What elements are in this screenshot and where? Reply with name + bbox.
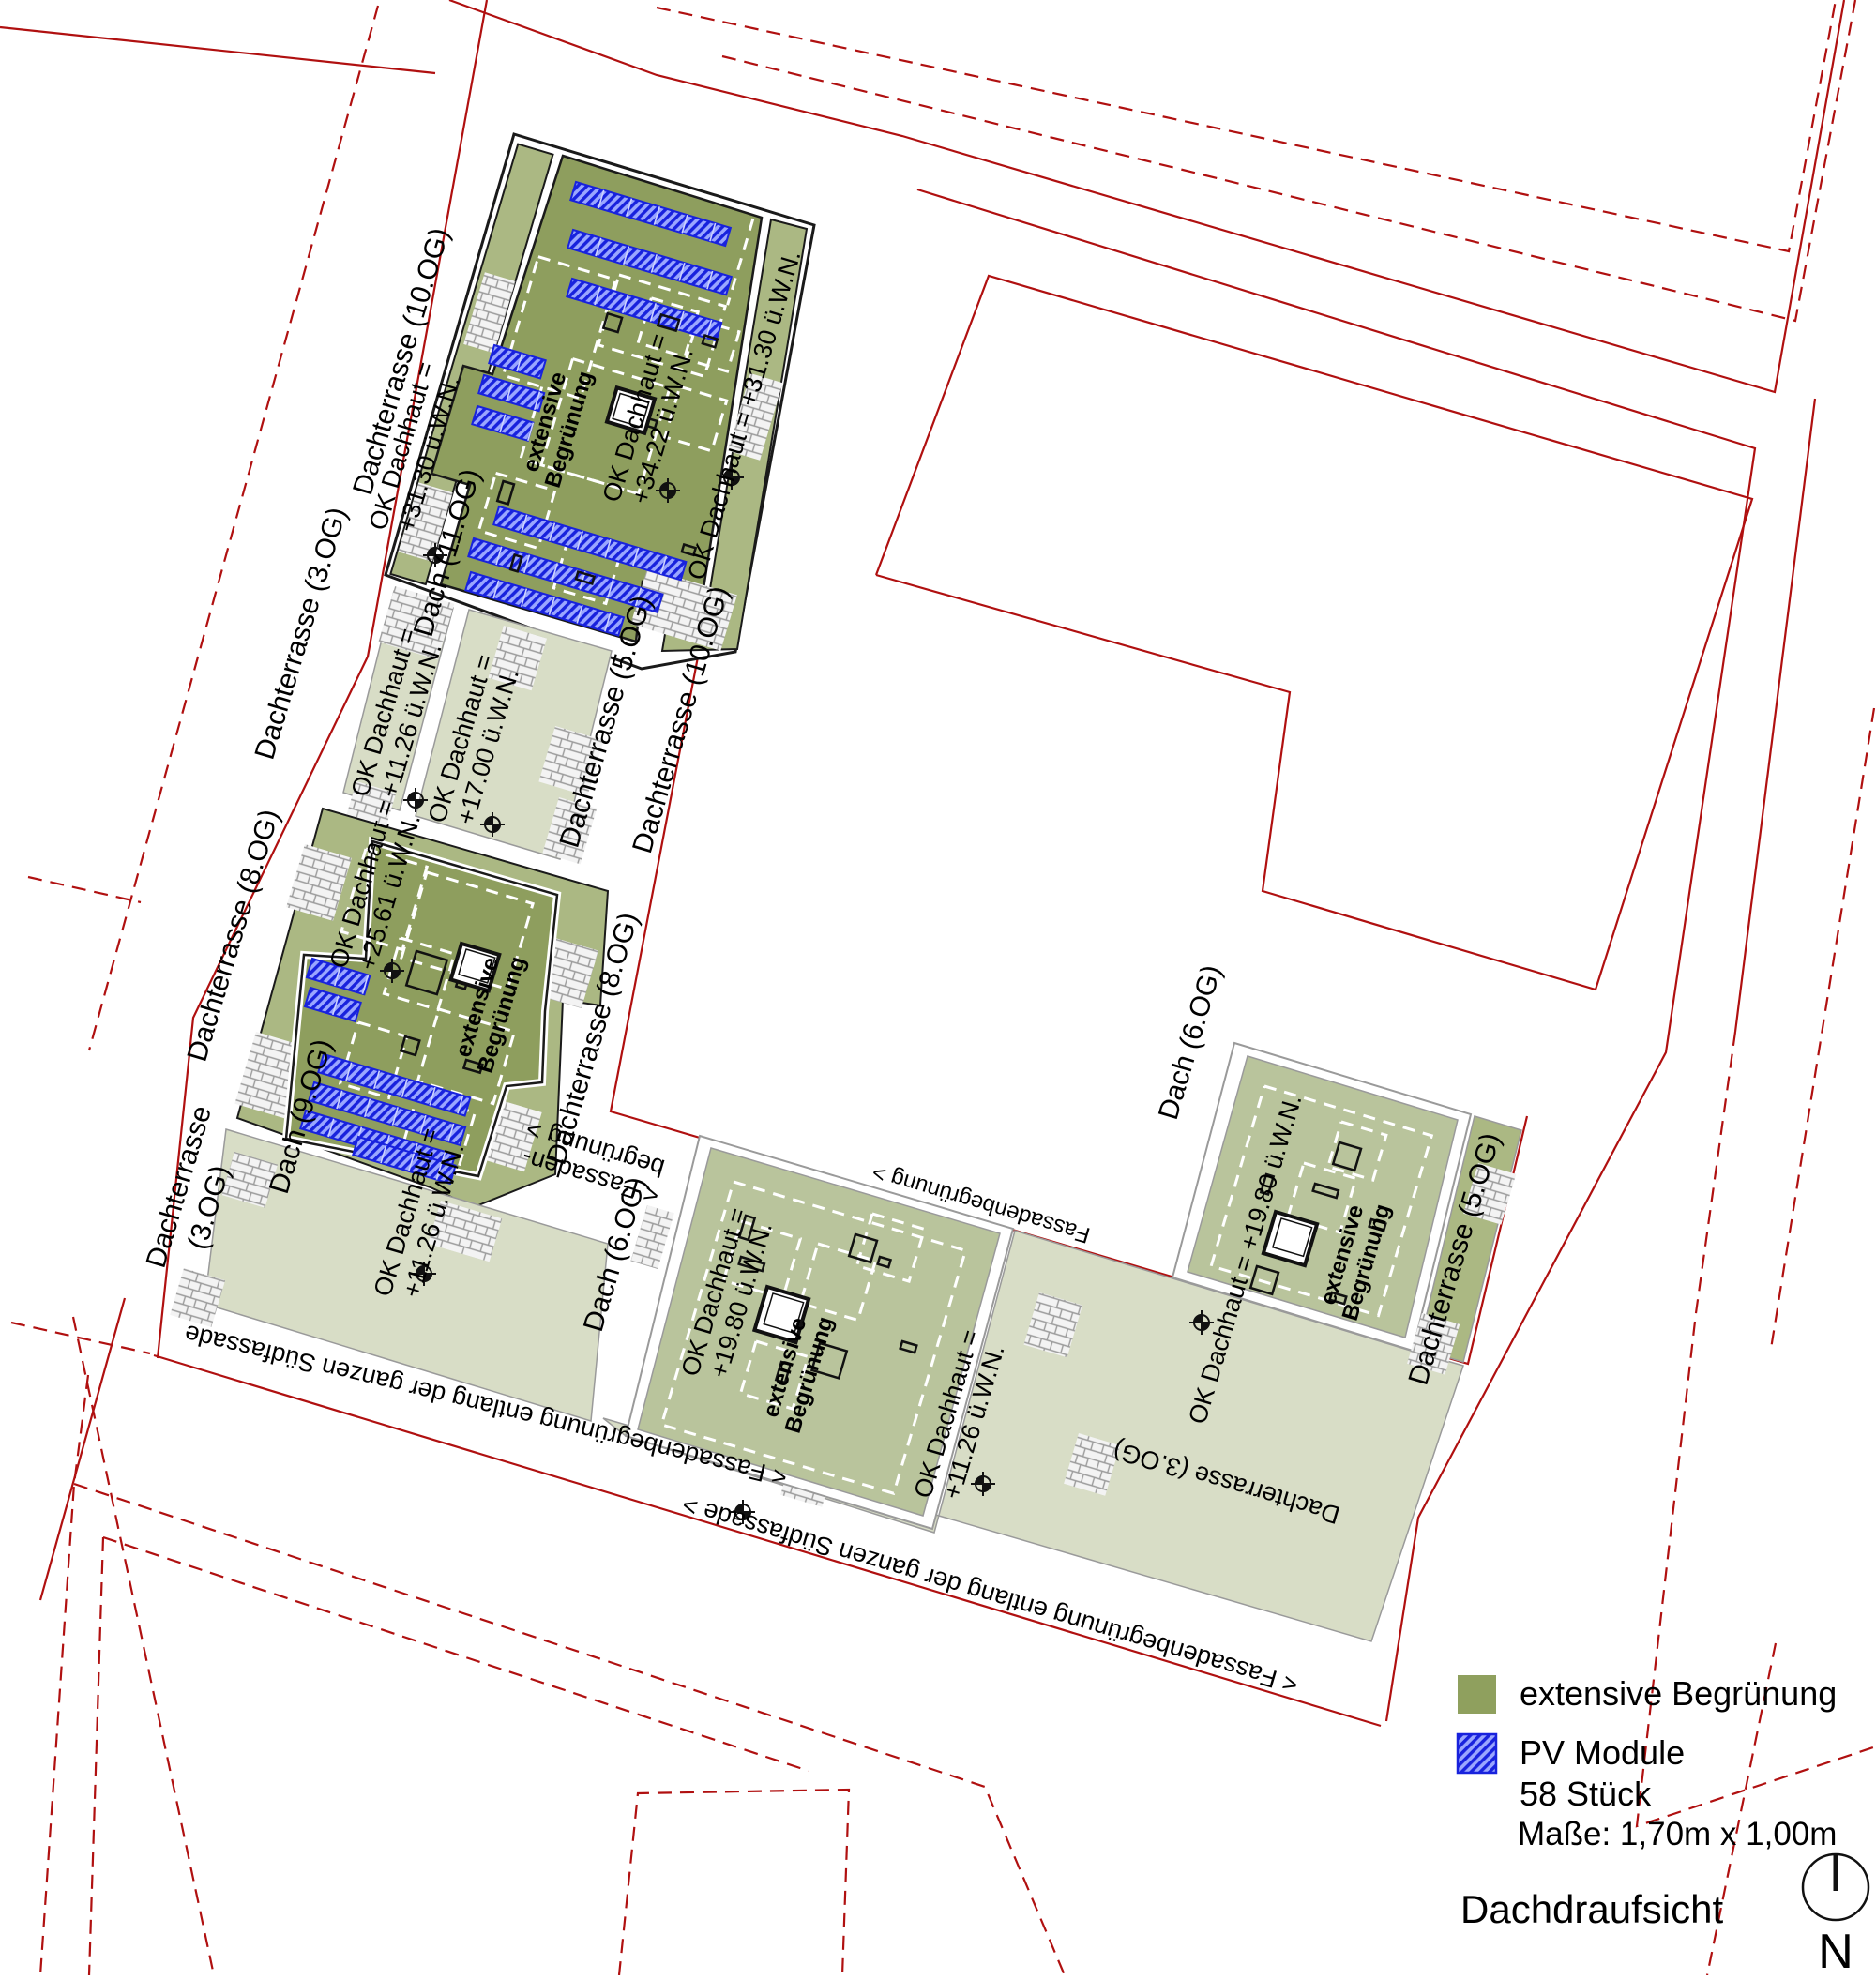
- svg-text:Dachdraufsicht: Dachdraufsicht: [1460, 1887, 1723, 1931]
- svg-text:PV Module: PV Module: [1520, 1733, 1685, 1772]
- svg-text:Maße: 1,70m x 1,00m: Maße: 1,70m x 1,00m: [1518, 1816, 1837, 1852]
- svg-text:N: N: [1818, 1925, 1853, 1975]
- svg-text:extensive Begrünung: extensive Begrünung: [1520, 1674, 1837, 1713]
- svg-text:58 Stück: 58 Stück: [1520, 1775, 1652, 1813]
